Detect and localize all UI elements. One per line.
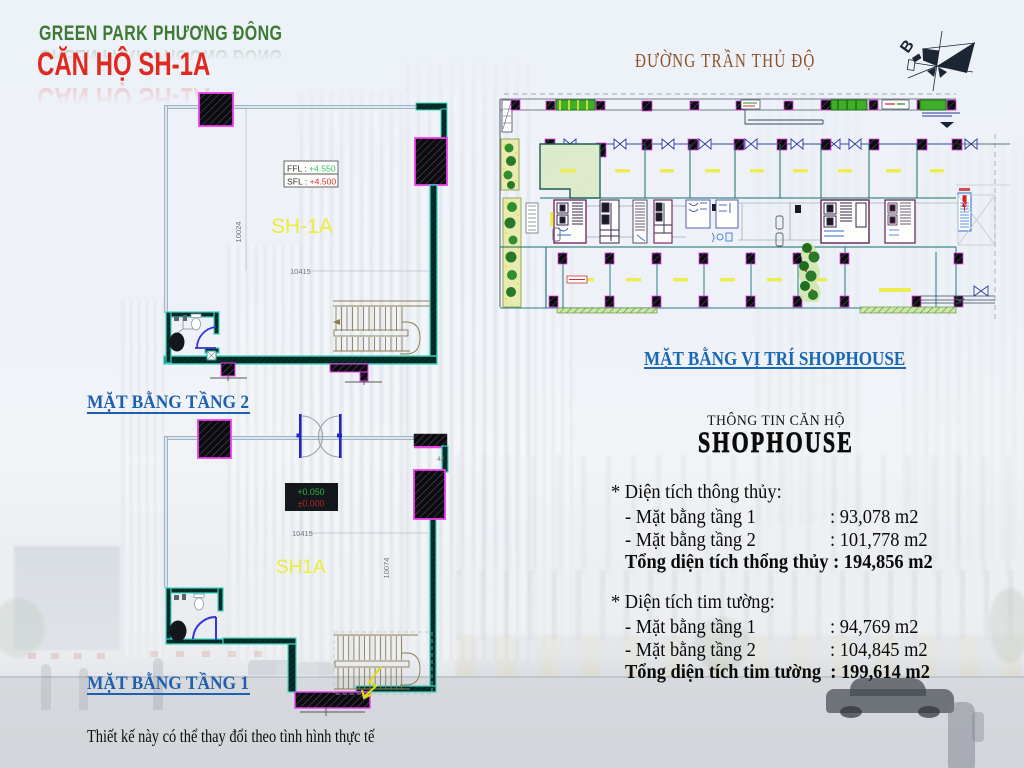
svg-text:+0.050: +0.050: [297, 487, 324, 497]
svg-text:42: 42: [437, 456, 445, 463]
svg-text:10024: 10024: [234, 222, 243, 243]
svg-text:±0.000: ±0.000: [298, 499, 325, 509]
svg-text:B: B: [897, 37, 918, 56]
svg-text:SFL : +4.500: SFL : +4.500: [287, 177, 336, 187]
svg-text:FFL : +4.550: FFL : +4.550: [287, 164, 336, 174]
svg-text:SH1A: SH1A: [276, 557, 326, 578]
svg-text:SH-1A: SH-1A: [271, 215, 333, 238]
svg-text:10415: 10415: [292, 529, 313, 538]
svg-text:10074: 10074: [382, 558, 391, 579]
svg-text:10415: 10415: [290, 267, 311, 276]
